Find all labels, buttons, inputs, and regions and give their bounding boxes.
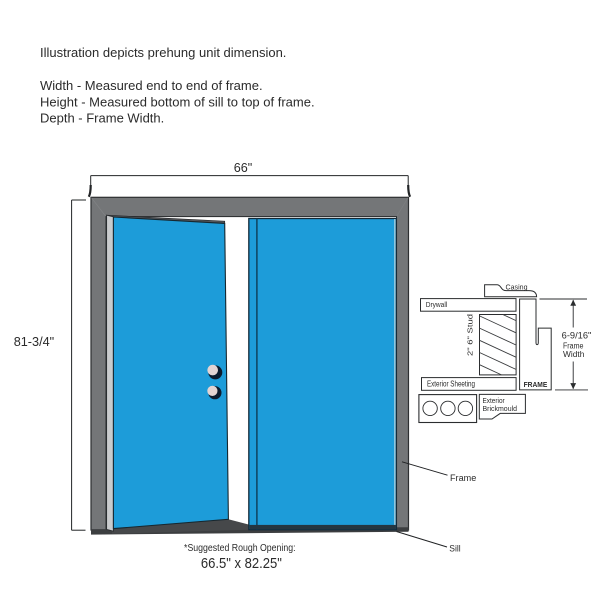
svg-text:Drywall: Drywall	[426, 300, 448, 309]
svg-text:2" 6" Stud: 2" 6" Stud	[466, 314, 475, 356]
svg-text:Height - Measured bottom of si: Height - Measured bottom of sill to top …	[40, 94, 315, 109]
svg-text:Depth - Frame Width.: Depth - Frame Width.	[40, 111, 164, 126]
svg-text:81-3/4": 81-3/4"	[14, 335, 54, 349]
svg-text:6-9/16": 6-9/16"	[562, 331, 592, 341]
svg-text:Width: Width	[563, 350, 584, 359]
svg-text:Illustration depicts prehung u: Illustration depicts prehung unit dimens…	[40, 45, 286, 60]
svg-text:66": 66"	[234, 161, 252, 175]
svg-text:Exterior Sheeting: Exterior Sheeting	[427, 379, 475, 388]
svg-text:Brickmould: Brickmould	[483, 404, 518, 413]
svg-text:66.5" x 82.25": 66.5" x 82.25"	[201, 555, 282, 572]
svg-text:Casing: Casing	[506, 283, 528, 292]
svg-text:Width - Measured end to end of: Width - Measured end to end of frame.	[40, 78, 263, 93]
svg-text:Sill: Sill	[449, 543, 460, 553]
svg-text:*Suggested Rough Opening:: *Suggested Rough Opening:	[184, 543, 296, 554]
svg-text:Frame: Frame	[450, 473, 476, 483]
svg-text:FRAME: FRAME	[524, 380, 548, 389]
